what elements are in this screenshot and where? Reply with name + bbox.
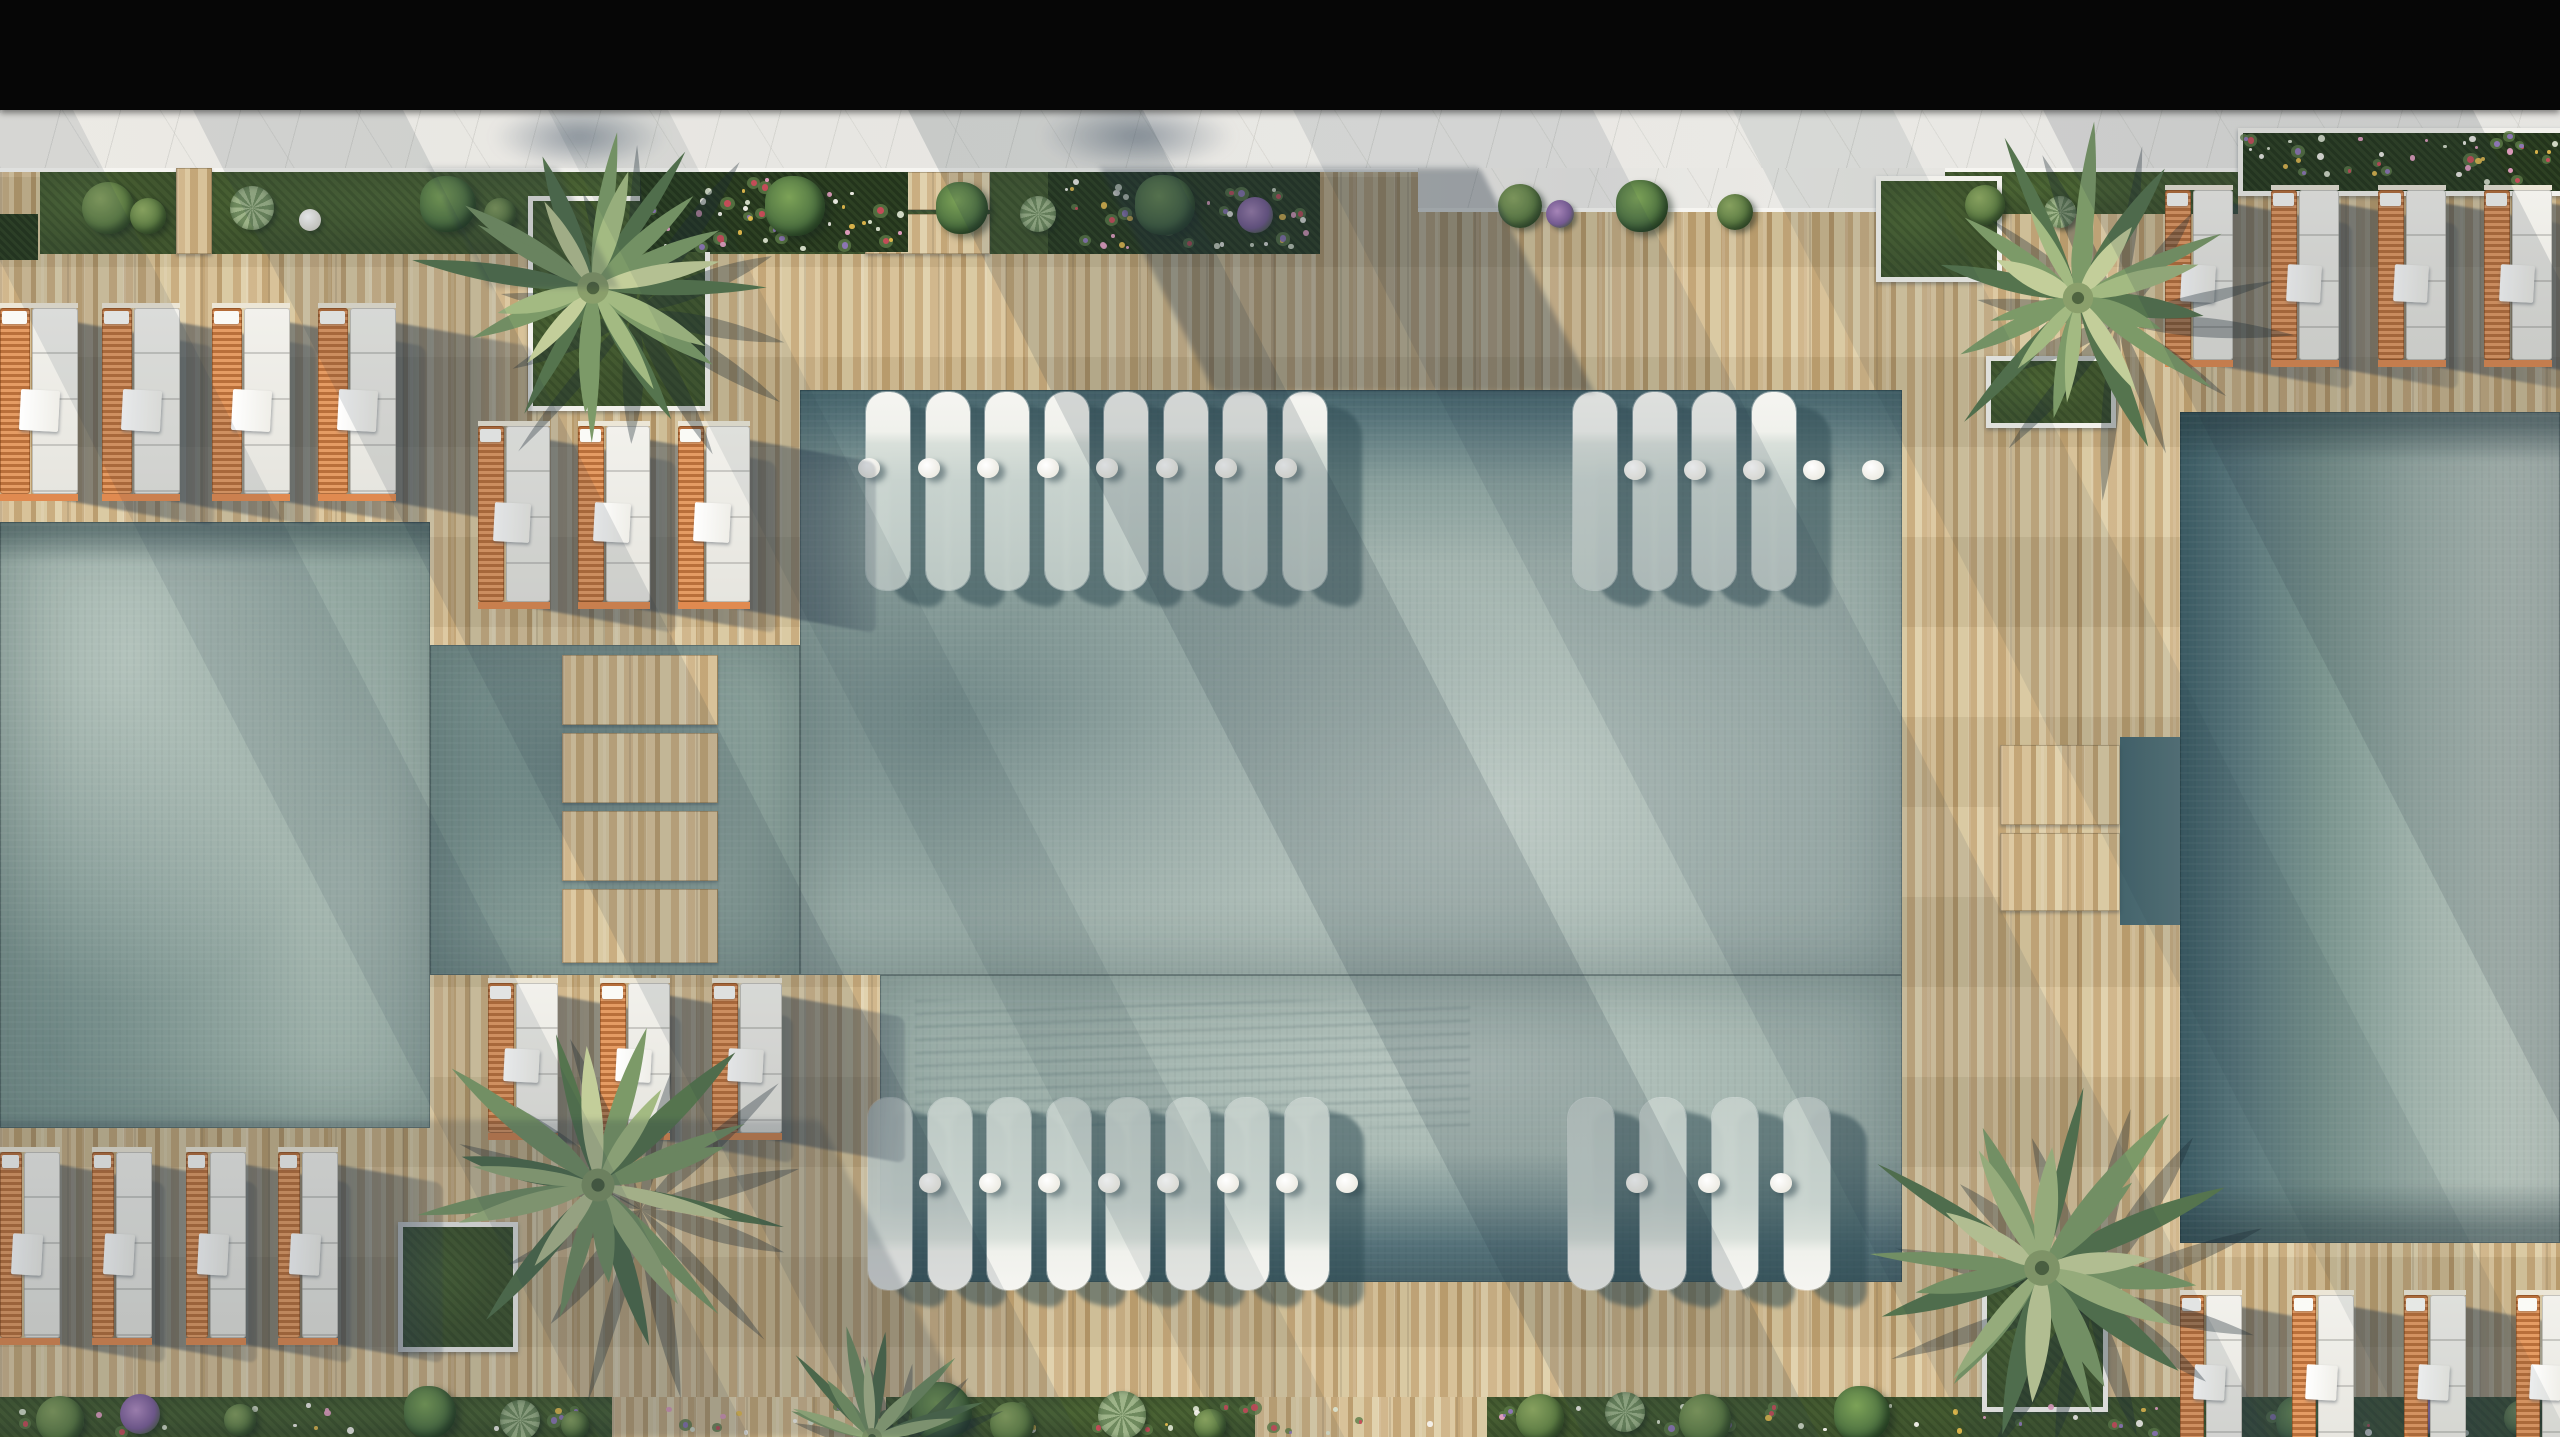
lounger-pair — [0, 1152, 60, 1338]
shrub-plant — [1498, 184, 1542, 228]
lounger-pair — [600, 983, 670, 1133]
head-pillow — [94, 1155, 111, 1168]
head-pillow — [188, 1155, 205, 1168]
flower — [1289, 1431, 1292, 1434]
cushion-lounger — [506, 426, 550, 602]
lounger-pair-shadow — [2409, 197, 2560, 389]
head-pillow — [490, 986, 511, 999]
flower — [574, 1411, 580, 1417]
flower — [2180, 1416, 2186, 1422]
in-pool-lounger — [1045, 392, 1089, 590]
pair-foot-rail — [2378, 360, 2446, 367]
foliage-dot — [1197, 1425, 1207, 1434]
folded-towel — [11, 1233, 43, 1275]
flower — [743, 206, 748, 211]
lounger-pair — [278, 1152, 338, 1338]
lounger-pair — [2516, 1295, 2560, 1437]
round-side-table — [1624, 460, 1646, 480]
flower — [2136, 1420, 2143, 1427]
flower — [2527, 1419, 2533, 1425]
foliage-dot — [838, 239, 852, 251]
flower — [1983, 1416, 1986, 1419]
flower — [828, 222, 831, 225]
deck-stepping-platform — [2000, 833, 2120, 911]
flower — [745, 200, 750, 205]
flower — [1170, 209, 1175, 214]
foliage-dot — [570, 1406, 580, 1415]
agave-plant — [230, 186, 274, 230]
round-side-table — [1770, 1173, 1792, 1193]
flower — [1111, 234, 1115, 238]
flower — [1359, 1420, 1363, 1424]
flower — [2481, 157, 2485, 161]
lounger-pair — [92, 1152, 152, 1338]
foliage-dot — [833, 1403, 842, 1411]
diagonal-shadow-band — [1730, 104, 2560, 1437]
cushion-lounger — [2430, 1295, 2466, 1437]
wood-slat-lounger — [2292, 1295, 2316, 1437]
palm-tree — [383, 970, 813, 1400]
lounger-pair-shadow — [710, 433, 876, 633]
foliage-dot — [2542, 155, 2552, 164]
flower — [2515, 178, 2520, 183]
in-pool-lounger — [1712, 1098, 1758, 1290]
flower — [2535, 150, 2539, 154]
flower — [1772, 1405, 1777, 1410]
in-pool-lounger — [868, 1098, 912, 1290]
head-pillow — [2, 311, 27, 324]
foliage-dot — [2517, 143, 2524, 150]
in-pool-lounger-shadow — [950, 400, 1005, 612]
lounger-pair — [2378, 190, 2446, 360]
flower — [1220, 242, 1225, 247]
flower — [868, 220, 872, 224]
lounger-pair-shadow — [2432, 1301, 2560, 1437]
lounger-pair-shadow — [744, 989, 905, 1163]
shrub-plant — [82, 182, 134, 234]
flower — [2372, 171, 2377, 176]
flower — [1271, 1425, 1277, 1431]
foliage-dot — [1285, 1428, 1292, 1434]
wood-slat-lounger — [0, 308, 30, 494]
in-pool-lounger — [1166, 1098, 1210, 1290]
foliage-dot — [1151, 219, 1161, 228]
round-side-table — [1862, 460, 1884, 480]
foliage-dot — [755, 208, 767, 219]
foliage-dot — [1092, 1422, 1104, 1433]
flower — [61, 1403, 67, 1409]
foliage-dot — [1765, 1408, 1776, 1418]
foliage-dot — [1276, 232, 1291, 245]
lounger-pair — [0, 308, 78, 494]
pair-head-rail — [2271, 185, 2339, 190]
main-pool-upper — [800, 390, 1902, 975]
wooden-deck-base — [0, 0, 2560, 1437]
head-pillow — [2294, 1298, 2313, 1311]
foliage-dot — [1141, 1424, 1153, 1435]
round-side-table — [979, 1173, 1001, 1193]
flower — [2119, 1424, 2123, 1428]
main-pool-lower — [880, 975, 1902, 1282]
round-side-table — [1276, 1173, 1298, 1193]
flower — [551, 1417, 558, 1424]
foliage-dot — [2511, 175, 2522, 185]
in-pool-lounger — [1752, 392, 1796, 590]
pair-head-rail — [2484, 185, 2552, 190]
foliage-dot — [1247, 1401, 1262, 1415]
foliage-dot — [788, 197, 803, 211]
lounger-pair-shadow — [213, 1159, 351, 1364]
diagonal-shadow-band — [905, 104, 1823, 1437]
wood-slat-lounger — [2404, 1295, 2428, 1437]
in-pool-lounger-shadow — [952, 1106, 1007, 1312]
flower — [2385, 169, 2390, 174]
head-pillow — [714, 986, 735, 999]
flower — [1127, 216, 1133, 222]
in-pool-lounger-shadow — [1716, 400, 1771, 612]
in-pool-lounger-shadow — [1776, 400, 1831, 612]
flower — [2358, 137, 2363, 142]
grass-strip — [212, 168, 1320, 254]
flower — [1298, 211, 1304, 217]
cushion-lounger — [2206, 1295, 2242, 1437]
flower — [766, 206, 771, 211]
flower — [719, 237, 724, 242]
pair-head-rail — [186, 1147, 246, 1152]
flower — [2507, 148, 2514, 155]
flower — [2377, 162, 2381, 166]
flower — [1252, 214, 1255, 217]
wood-slat-lounger — [102, 308, 132, 494]
flower — [1544, 1412, 1549, 1417]
wood-slat-lounger — [92, 1152, 114, 1338]
palm-bed-planter — [398, 1222, 518, 1352]
furniture-layer — [0, 0, 2560, 1437]
flower — [877, 207, 884, 214]
flower — [2238, 1423, 2243, 1428]
flower — [2467, 156, 2474, 163]
flower — [1326, 1431, 1330, 1435]
in-pool-lounger — [928, 1098, 972, 1290]
flower — [230, 1411, 234, 1415]
head-pillow — [2273, 193, 2294, 206]
flower — [724, 200, 731, 207]
pair-head-rail — [0, 303, 78, 308]
flower — [508, 1421, 513, 1426]
flower — [1214, 243, 1219, 248]
flower — [1229, 191, 1234, 196]
flower — [508, 1429, 515, 1436]
flower — [842, 242, 848, 248]
pair-foot-rail — [478, 602, 550, 609]
foliage-dot — [115, 1426, 128, 1437]
lounger-pair-shadow — [2515, 197, 2560, 389]
flower — [716, 1426, 720, 1430]
cushion-lounger — [350, 308, 396, 494]
deck-stepping-platform — [562, 733, 718, 803]
pair-head-rail — [488, 978, 558, 983]
flower — [759, 211, 764, 216]
flower — [1276, 194, 1281, 199]
round-side-table — [1037, 458, 1059, 478]
in-pool-lounger-shadow — [1307, 400, 1362, 612]
lounger-pair — [102, 308, 180, 494]
foliage-dot — [1294, 208, 1306, 219]
bottom-deck-walkway — [612, 1397, 886, 1437]
pair-head-rail — [0, 1147, 60, 1152]
folded-towel — [19, 389, 60, 432]
flower — [2224, 1427, 2230, 1433]
foliage-dot — [1163, 226, 1174, 236]
folded-towel — [693, 503, 731, 544]
banana-plant — [1135, 175, 1195, 235]
foliage-dot — [758, 181, 772, 193]
lounger-pair — [2180, 1295, 2242, 1437]
lounger-pair — [2484, 190, 2552, 360]
flower — [1020, 1418, 1026, 1424]
flower — [19, 1409, 26, 1416]
flower — [2465, 165, 2471, 171]
flower — [1145, 1427, 1150, 1432]
flowerclump-plant — [120, 1394, 160, 1434]
lounger-pair-shadow — [247, 315, 426, 527]
lounger-pair — [678, 426, 750, 602]
foliage-dot — [1225, 188, 1235, 197]
lounger-pair — [488, 983, 558, 1133]
lounger-pair-shadow — [632, 989, 793, 1163]
flower — [1100, 242, 1106, 248]
flower — [1261, 218, 1266, 223]
flower — [2141, 1408, 2146, 1413]
foliage-dot — [777, 183, 790, 195]
flower — [1187, 241, 1192, 246]
foliage-dot — [1768, 1402, 1778, 1411]
folded-towel — [231, 389, 272, 432]
cushion-lounger — [2318, 1295, 2354, 1437]
flower — [2348, 169, 2352, 173]
round-side-table — [1698, 1173, 1720, 1193]
flower — [2410, 155, 2416, 161]
flower — [781, 186, 787, 192]
flower — [666, 1407, 671, 1412]
pair-foot-rail — [102, 494, 180, 501]
lounger-pair — [712, 983, 782, 1133]
pair-head-rail — [478, 421, 550, 426]
flower — [1207, 201, 1210, 204]
wood-slat-lounger — [2484, 190, 2510, 360]
pair-foot-rail — [678, 602, 750, 609]
flower — [1877, 1404, 1882, 1409]
round-side-table — [1038, 1173, 1060, 1193]
flower — [747, 215, 752, 220]
diagonal-shadow-band — [1290, 104, 2273, 1437]
cushion-lounger — [32, 308, 78, 494]
flower — [849, 224, 854, 229]
flower — [876, 227, 879, 230]
flower — [1101, 243, 1107, 249]
flower — [2475, 158, 2481, 164]
flower — [347, 1427, 354, 1434]
pair-head-rail — [318, 303, 396, 308]
flower — [1499, 1414, 1505, 1420]
flower — [1161, 192, 1165, 196]
in-pool-lounger — [1283, 392, 1327, 590]
flower — [845, 230, 850, 235]
folded-towel — [2529, 1365, 2560, 1402]
pair-head-rail — [212, 303, 290, 308]
foliage-dot — [2148, 1428, 2160, 1437]
flower — [1250, 243, 1254, 247]
deck-stepping-platform — [562, 811, 718, 881]
flower — [1953, 1409, 1959, 1415]
flower — [574, 1420, 577, 1423]
foliage-dot — [69, 1416, 84, 1430]
flower-bed-planter — [2238, 128, 2560, 196]
flower — [1201, 1428, 1206, 1433]
cushion-lounger — [302, 1152, 338, 1338]
shrub-plant — [561, 1411, 589, 1437]
head-pillow — [280, 1155, 297, 1168]
folded-towel — [103, 1233, 135, 1275]
foliage-dot — [1722, 1419, 1737, 1432]
wood-slat-lounger — [212, 308, 242, 494]
pair-foot-rail — [600, 1133, 670, 1140]
in-pool-lounger — [1104, 392, 1148, 590]
foliage-dot — [2363, 1421, 2370, 1427]
in-pool-lounger-shadow — [892, 1106, 947, 1312]
in-pool-lounger — [1633, 392, 1677, 590]
shrub-plant — [1965, 185, 2005, 225]
foliage-dot — [1105, 214, 1118, 226]
flower — [324, 1410, 331, 1417]
folded-towel — [2180, 264, 2216, 303]
in-pool-lounger — [1640, 1098, 1686, 1290]
flower — [1168, 1425, 1173, 1430]
pair-foot-rail — [318, 494, 396, 501]
flower — [119, 1429, 125, 1435]
flower — [1503, 1414, 1506, 1417]
flower — [1657, 1420, 1660, 1423]
wood-slat-lounger — [578, 426, 604, 602]
cushion-lounger — [516, 983, 558, 1133]
pair-foot-rail — [0, 1338, 60, 1345]
flower — [864, 1420, 870, 1426]
flower — [883, 1413, 890, 1420]
foliage-dot — [879, 1410, 893, 1423]
flower — [2367, 1424, 2370, 1427]
head-pillow — [2380, 193, 2401, 206]
flower — [720, 242, 725, 247]
banana-plant — [912, 1382, 972, 1437]
in-pool-lounger-shadow — [1309, 1106, 1364, 1312]
flower — [696, 210, 703, 217]
flowerclump-plant — [1546, 200, 1574, 228]
bottom-deck-walkway — [1255, 1397, 1487, 1437]
flower — [142, 1416, 146, 1420]
flower — [736, 1411, 741, 1416]
lounger-pair-shadow — [520, 989, 681, 1163]
pair-head-rail — [2292, 1290, 2354, 1295]
head-pillow — [480, 429, 501, 442]
flower — [1073, 179, 1079, 185]
pool-ripple-texture — [915, 1000, 1470, 1128]
flower — [837, 1406, 841, 1410]
flower — [1508, 1409, 1513, 1414]
round-side-table — [1336, 1173, 1358, 1193]
flower — [2469, 136, 2476, 143]
flower — [862, 221, 866, 225]
cushion-lounger — [606, 426, 650, 602]
foliage-dot — [2291, 145, 2305, 157]
cushion-lounger — [24, 1152, 60, 1338]
foliage-dot — [2115, 1421, 2123, 1428]
flower — [66, 1424, 71, 1429]
foliage-dot — [695, 241, 708, 253]
flower — [1769, 1411, 1774, 1416]
folded-towel — [593, 503, 631, 544]
agave-bed-planter — [1986, 356, 2116, 428]
flower — [1259, 225, 1263, 229]
folded-towel — [2305, 1365, 2338, 1402]
cushion-lounger — [2542, 1295, 2560, 1437]
in-pool-lounger — [1106, 1098, 1150, 1290]
flower — [1065, 188, 1068, 191]
foliage-dot — [775, 233, 788, 245]
shrub-plant — [484, 198, 516, 230]
folded-towel — [197, 1233, 229, 1275]
flower — [1303, 230, 1309, 236]
foliage-dot — [2344, 166, 2352, 174]
flower — [762, 184, 768, 190]
flower — [720, 1414, 725, 1419]
banana-plant — [2276, 1396, 2324, 1437]
foliage-dot — [743, 212, 753, 221]
flower — [827, 192, 832, 197]
flower — [314, 1426, 318, 1430]
flower — [494, 1426, 499, 1431]
shrub-plant — [1516, 1394, 1564, 1437]
right-pool-inlet — [2120, 737, 2180, 925]
palm-bed-planter — [1876, 176, 2002, 282]
banana-plant — [1616, 180, 1668, 232]
flower — [2365, 1429, 2372, 1436]
lounger-pair — [2271, 190, 2339, 360]
flower — [2249, 148, 2252, 151]
head-pillow — [2182, 1298, 2201, 1311]
flower — [2463, 1430, 2469, 1436]
in-pool-lounger-shadow — [890, 400, 945, 612]
palm-bed-planter — [1982, 1262, 2108, 1412]
pair-head-rail — [600, 978, 670, 983]
round-side-table — [977, 458, 999, 478]
pair-head-rail — [2180, 1290, 2242, 1295]
deck-walkway — [865, 172, 990, 210]
flower — [2227, 1406, 2233, 1412]
flower — [717, 235, 723, 241]
bottom-planting-strip — [0, 1397, 2560, 1437]
flower — [1264, 242, 1268, 246]
palm-tree — [1810, 1036, 2274, 1437]
pools-layer — [0, 0, 2560, 1437]
shadow-patch — [0, 1120, 982, 1437]
pair-foot-rail — [0, 494, 78, 501]
shrub-plant — [1717, 194, 1753, 230]
flower — [1020, 1405, 1025, 1410]
flower — [325, 1408, 330, 1413]
pair-foot-rail — [92, 1338, 152, 1345]
flower — [2280, 1415, 2286, 1421]
flower — [1167, 229, 1172, 234]
